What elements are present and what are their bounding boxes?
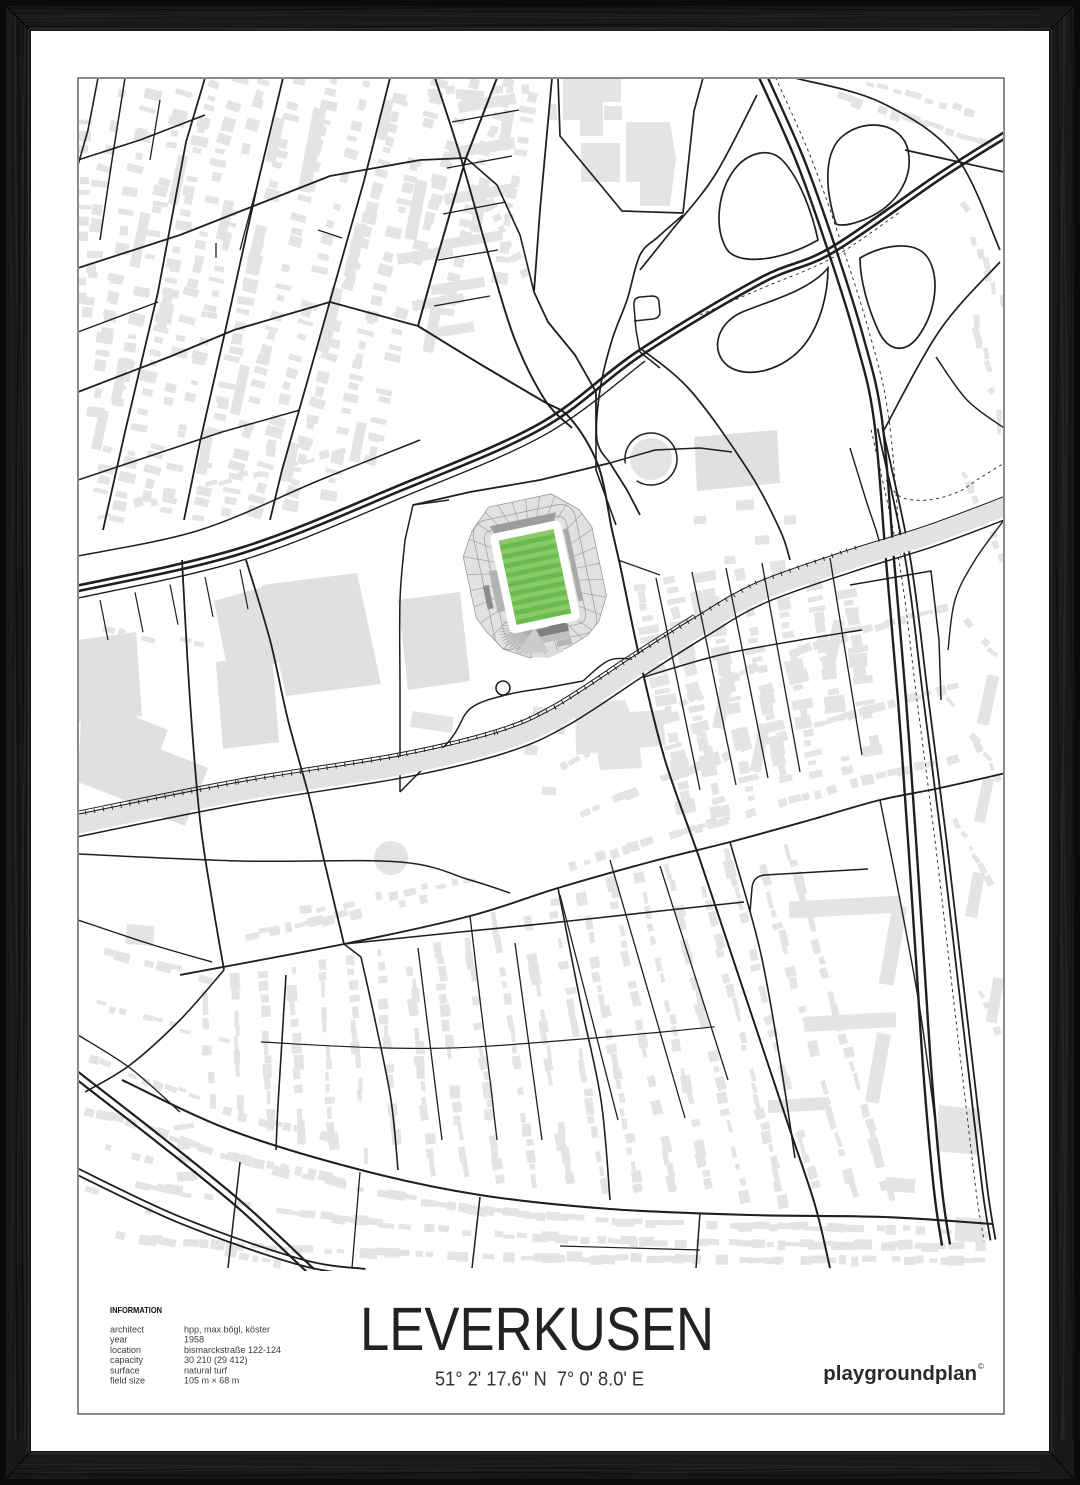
svg-text:INFORMATION: INFORMATION bbox=[110, 1305, 162, 1315]
svg-text:bismarckstraße 122-124: bismarckstraße 122-124 bbox=[184, 1345, 281, 1355]
svg-text:©: © bbox=[978, 1362, 984, 1371]
svg-text:year: year bbox=[110, 1335, 128, 1345]
svg-text:1958: 1958 bbox=[184, 1335, 204, 1345]
svg-text:architect: architect bbox=[110, 1325, 145, 1335]
svg-text:51° 2' 17.6'' N 7° 0' 8.0' E: 51° 2' 17.6'' N 7° 0' 8.0' E bbox=[435, 1369, 644, 1391]
svg-text:30 210 (29 412): 30 210 (29 412) bbox=[184, 1355, 248, 1365]
svg-text:playgroundplan: playgroundplan bbox=[823, 1362, 977, 1385]
svg-text:capacity: capacity bbox=[110, 1355, 144, 1365]
svg-text:location: location bbox=[110, 1345, 141, 1355]
svg-text:natural turf: natural turf bbox=[184, 1365, 228, 1375]
svg-text:105 m × 68 m: 105 m × 68 m bbox=[184, 1376, 239, 1386]
svg-text:surface: surface bbox=[110, 1365, 140, 1375]
svg-text:field size: field size bbox=[110, 1376, 145, 1386]
svg-text:hpp, max bögl, köster: hpp, max bögl, köster bbox=[184, 1325, 270, 1335]
svg-text:LEVERKUSEN: LEVERKUSEN bbox=[360, 1295, 714, 1363]
